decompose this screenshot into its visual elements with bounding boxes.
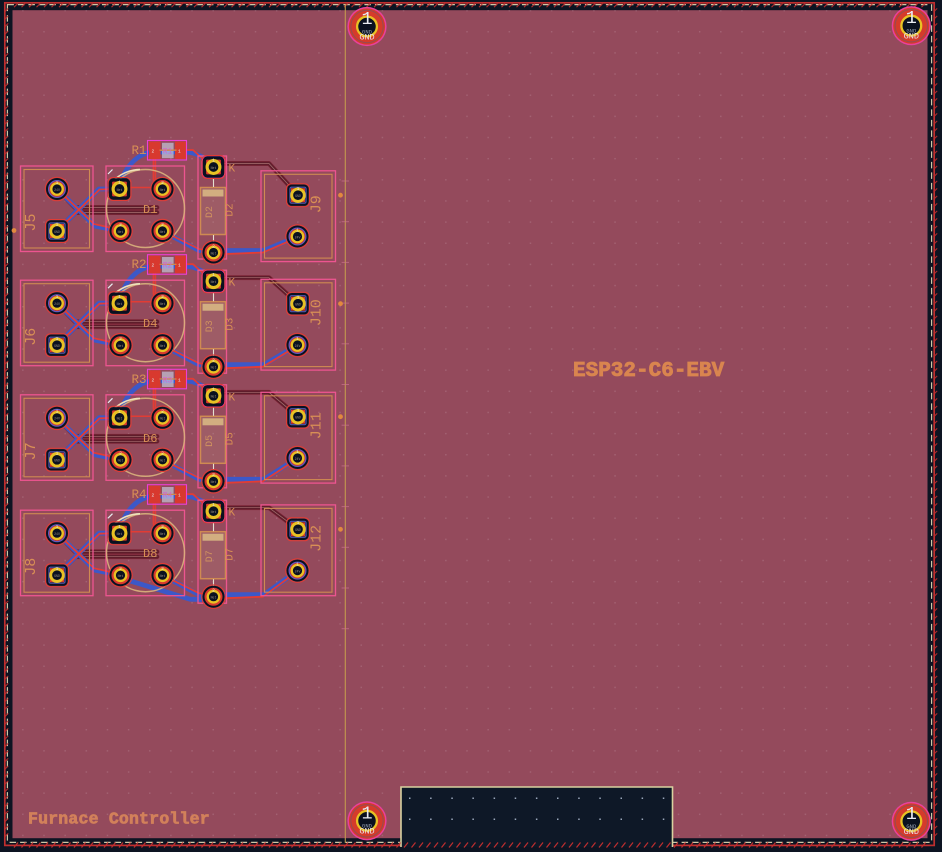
svg-text:D3: D3	[225, 318, 237, 331]
svg-text:J8: J8	[23, 558, 40, 576]
svg-text:D8: D8	[143, 547, 157, 561]
svg-text:D4: D4	[143, 317, 157, 331]
svg-text:D5: D5	[205, 435, 216, 447]
svg-text:R3: R3	[131, 373, 146, 387]
svg-text:D2: D2	[225, 203, 237, 216]
svg-text:2: 2	[152, 149, 155, 155]
svg-text:2: 2	[152, 263, 155, 269]
svg-text:R2: R2	[163, 262, 173, 271]
svg-text:R4: R4	[131, 488, 146, 502]
svg-text:K: K	[229, 508, 236, 520]
svg-text:J6: J6	[23, 328, 40, 346]
svg-text:2: 2	[152, 493, 155, 499]
svg-text:1: 1	[178, 263, 181, 269]
svg-text:R2: R2	[131, 258, 146, 272]
svg-text:D7: D7	[205, 550, 216, 562]
svg-text:2: 2	[152, 377, 155, 383]
svg-text:R1: R1	[131, 144, 146, 158]
svg-text:1: 1	[178, 493, 181, 499]
svg-text:D1: D1	[143, 203, 157, 217]
svg-text:R4: R4	[163, 492, 173, 501]
svg-text:J11: J11	[309, 412, 326, 439]
svg-text:D6: D6	[143, 432, 157, 446]
svg-text:1: 1	[178, 377, 181, 383]
svg-text:K: K	[229, 278, 236, 290]
svg-text:J12: J12	[309, 525, 326, 552]
svg-text:J9: J9	[309, 195, 326, 213]
svg-text:D5: D5	[225, 432, 237, 445]
svg-text:R3: R3	[163, 376, 173, 385]
svg-text:1: 1	[178, 149, 181, 155]
svg-text:J7: J7	[23, 442, 40, 460]
svg-text:J5: J5	[23, 213, 40, 231]
svg-text:D7: D7	[225, 548, 237, 561]
svg-text:D2: D2	[205, 206, 216, 218]
svg-text:ESP32-C6-EBV: ESP32-C6-EBV	[573, 360, 725, 383]
svg-text:K: K	[229, 164, 236, 176]
svg-text:Furnace Controller: Furnace Controller	[28, 810, 210, 829]
svg-text:D3: D3	[205, 320, 216, 332]
svg-text:J10: J10	[309, 299, 326, 326]
svg-text:R1: R1	[163, 148, 173, 157]
svg-text:K: K	[229, 392, 236, 404]
